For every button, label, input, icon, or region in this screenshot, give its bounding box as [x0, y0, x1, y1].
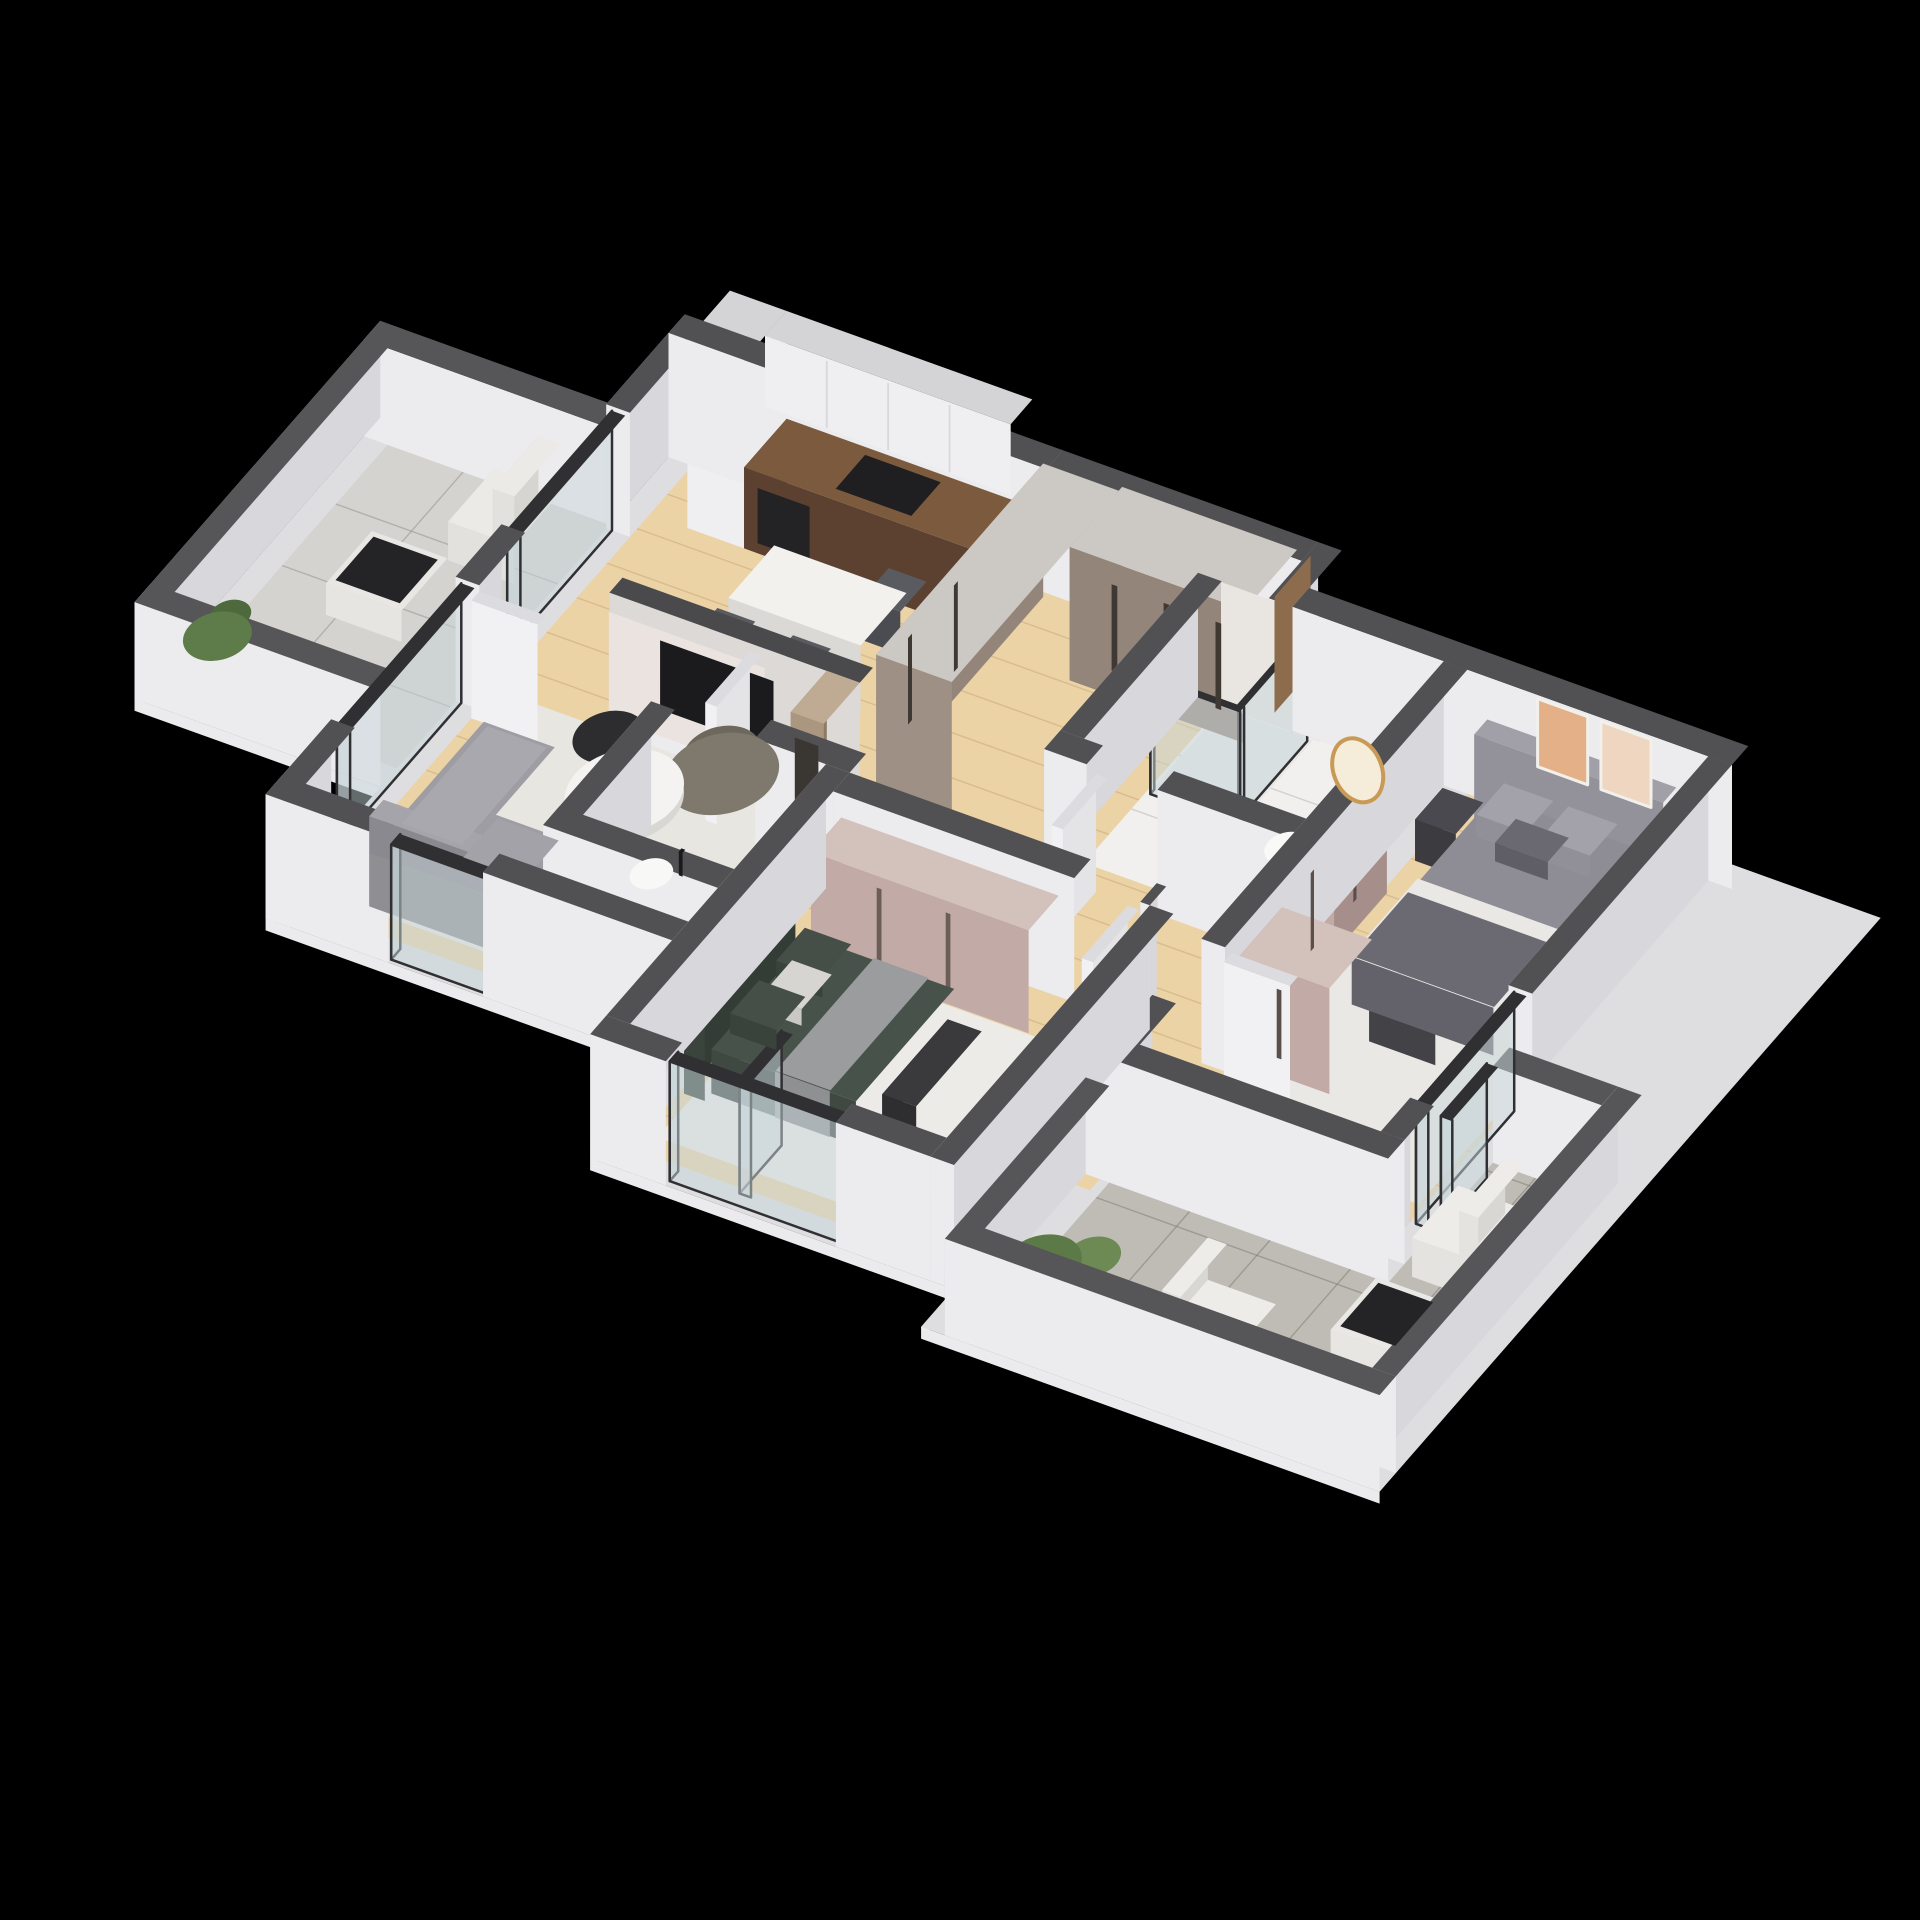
hall-wardrobe-bank1-handle1	[908, 634, 912, 725]
master-wardrobe-slot1	[1311, 869, 1314, 951]
hall-wardrobe-bank1-handle2	[954, 581, 958, 672]
apartment-3d-floor-plan	[0, 0, 1920, 1920]
bedroom2-wardrobe-slot2	[946, 912, 951, 992]
hall-wardrobe-bank2-handle3	[1216, 622, 1222, 711]
render-stage	[0, 0, 1920, 1920]
hall-wardrobe-bank2-handle1	[1112, 584, 1118, 673]
kitchen-cabinet-seam3	[949, 405, 951, 473]
balcony-door-open-leaf	[471, 592, 545, 743]
master-wardrobe-low-slot	[1277, 989, 1282, 1060]
kitchen-cabinet-seam1	[826, 361, 828, 429]
bedroom2-wardrobe-slot1	[877, 888, 882, 968]
kitchen-cabinet-seam2	[887, 383, 889, 451]
